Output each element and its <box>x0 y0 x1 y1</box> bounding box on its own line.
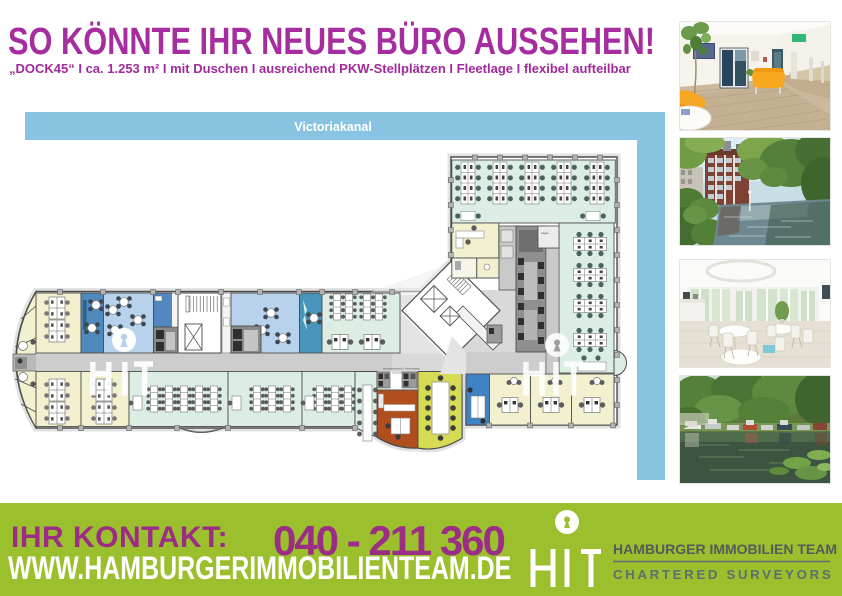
svg-text:brandschutztechn. Hinterlegung: brandschutztechn. Hinterlegung <box>383 367 420 371</box>
svg-text:HAMBURGER IMMOBILIEN TEAM: HAMBURGER IMMOBILIEN TEAM <box>613 541 837 557</box>
svg-text:Victoriakanal: Victoriakanal <box>294 120 372 134</box>
svg-text:CHARTERED SURVEYORS: CHARTERED SURVEYORS <box>613 567 833 582</box>
svg-text:Lager: Lager <box>541 231 549 235</box>
